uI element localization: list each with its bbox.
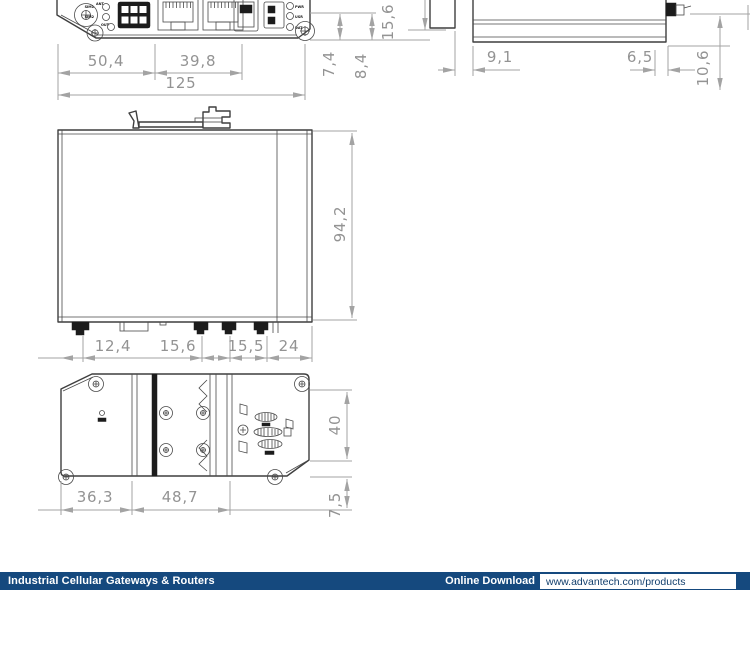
dim-6-5: 6,5	[627, 48, 653, 66]
dimensional-drawing: ANT SIM1 SIM2 OUT	[0, 0, 750, 565]
dim-125: 125	[165, 74, 196, 92]
dim-12-4: 12,4	[95, 337, 132, 355]
dim-50-4: 50,4	[88, 52, 125, 70]
bottom-antenna-connector-4-icon	[254, 322, 268, 334]
out-label: OUT	[101, 23, 110, 27]
dim-94-2: 94,2	[331, 206, 349, 243]
dim-48-7: 48,7	[162, 488, 199, 506]
footer-download-label: Online Download	[445, 572, 535, 590]
led-pwr-label: PWR	[295, 5, 304, 9]
dim-15-5: 15,5	[228, 337, 265, 355]
profile-body-outline	[58, 130, 312, 322]
dim-24: 24	[279, 337, 300, 355]
dim-10-6: 10,6	[694, 50, 712, 87]
dim-9-1: 9,1	[487, 48, 513, 66]
right-side-view: 9,1 6,5 10,6	[430, 0, 750, 90]
bottom-edge-step	[273, 322, 278, 333]
din-rail-dark-rib	[152, 374, 157, 476]
dim-15-6: 15,6	[160, 337, 197, 355]
dim-36-3: 36,3	[77, 488, 114, 506]
rear-view: 36,3 48,7 40 7,5	[38, 374, 352, 518]
rear-micro-label-left	[98, 418, 106, 422]
power-connector-6pin-icon	[118, 2, 150, 28]
profile-view: 94,2 12,4 15,6 15,5 24	[38, 107, 357, 362]
footer-category-title: Industrial Cellular Gateways & Routers	[8, 572, 215, 590]
datasheet-page: ANT SIM1 SIM2 OUT	[0, 0, 750, 650]
din-clip-side-outline	[430, 0, 455, 28]
side-antenna-connector-icon	[666, 3, 691, 16]
dim-15-6-front: 15,6	[379, 4, 397, 41]
side-body-outline	[473, 0, 666, 42]
din-clip-hook	[129, 111, 139, 128]
footer-bar: Industrial Cellular Gateways & Routers O…	[0, 572, 750, 590]
footer-url-link[interactable]: www.advantech.com/products	[540, 574, 736, 589]
front-panel-view: ANT SIM1 SIM2 OUT	[57, 0, 446, 100]
led-usr-label: USR	[295, 15, 303, 19]
dim-40: 40	[326, 415, 344, 436]
rear-body-outline	[61, 374, 309, 476]
din-clip-bar	[139, 122, 203, 127]
dim-39-8: 39,8	[180, 52, 217, 70]
rear-micro-label-1	[262, 423, 270, 426]
din-clip-latch	[203, 107, 230, 128]
bottom-antenna-connector-1-icon	[72, 322, 89, 335]
footer-url-box[interactable]: www.advantech.com/products	[540, 574, 736, 589]
sim1-label: SIM1	[85, 5, 95, 9]
dim-7-5: 7,5	[326, 492, 344, 518]
bottom-antenna-connector-2-icon	[194, 322, 208, 334]
dim-8-4: 8,4	[352, 53, 370, 79]
dim-7-4: 7,4	[320, 51, 338, 77]
sim2-label: SIM2	[85, 15, 95, 19]
bottom-antenna-connector-3-icon	[222, 322, 236, 334]
rear-micro-label-2	[265, 451, 274, 455]
